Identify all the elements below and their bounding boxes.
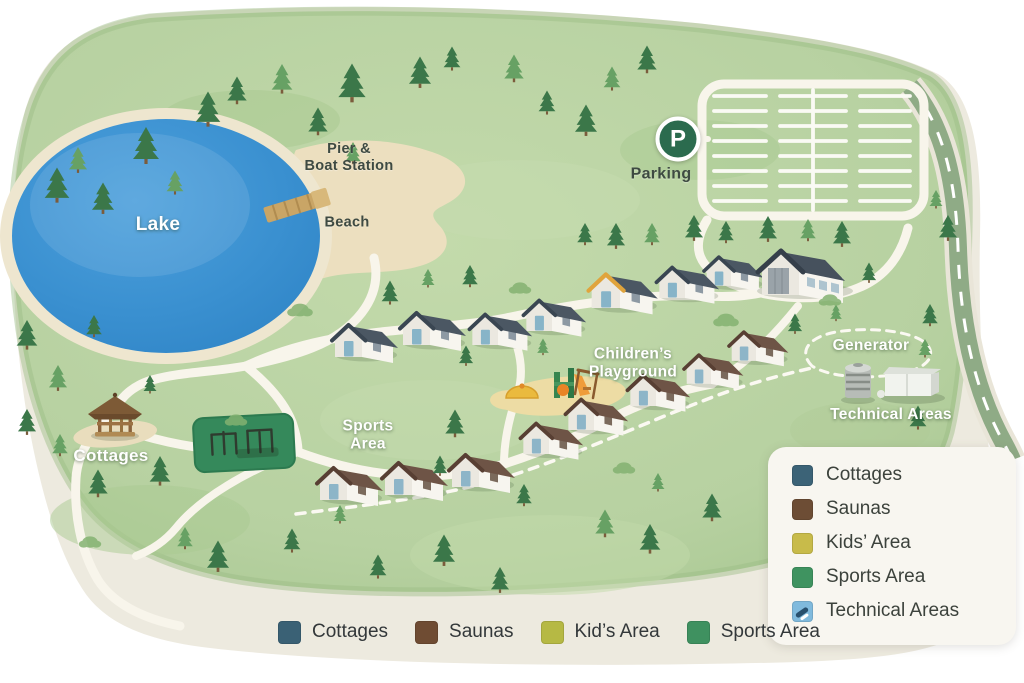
pier-label-line1: Pier &	[305, 141, 394, 158]
legend-label: Cottages	[312, 621, 388, 643]
sports-area-label-line1: Sports	[343, 418, 394, 436]
legend-label: Saunas	[826, 498, 890, 520]
color-swatch	[792, 567, 813, 588]
parking-label: Parking	[631, 166, 692, 185]
sports-area-label: Sports Area	[343, 418, 394, 455]
legend-item: Cottages	[278, 621, 388, 644]
color-swatch	[792, 533, 813, 554]
playground-label-line1: Children’s	[589, 346, 677, 364]
resort-map: Lake Pier & Boat Station Beach P Parking…	[0, 0, 1024, 683]
legend-item: Cottages	[792, 464, 1016, 486]
legend-label: Sports Area	[721, 621, 820, 643]
legend-item: Technical Areas	[792, 600, 1016, 622]
legend-label: Sports Area	[826, 566, 925, 588]
cottages-area-label: Cottages	[73, 446, 148, 466]
legend-item: Saunas	[415, 621, 513, 644]
generator-label: Generator	[833, 337, 910, 355]
technical-building-icon	[877, 367, 945, 404]
legend-item: Kids’ Area	[792, 532, 1016, 554]
legend-label: Kid’s Area	[575, 621, 660, 643]
technical-areas-label: Technical Areas	[830, 406, 952, 424]
lake-label: Lake	[136, 214, 181, 236]
pier-label: Pier & Boat Station	[305, 141, 394, 175]
legend-label: Cottages	[826, 464, 902, 486]
legend-panel-items: CottagesSaunasKids’ AreaSports AreaTechn…	[792, 464, 1016, 622]
bottom-legend: CottagesSaunasKid’s AreaSports Area	[278, 615, 820, 649]
sports-area-label-line2: Area	[343, 436, 394, 454]
color-swatch	[278, 621, 301, 644]
color-swatch	[415, 621, 438, 644]
color-swatch	[792, 465, 813, 486]
beach-label: Beach	[324, 214, 369, 231]
legend-label: Technical Areas	[826, 600, 959, 622]
playground-label: Children’s Playground	[589, 346, 677, 383]
color-swatch	[541, 621, 564, 644]
legend-item: Kid’s Area	[541, 621, 660, 644]
color-swatch	[792, 499, 813, 520]
pier-label-line2: Boat Station	[305, 158, 394, 175]
color-swatch	[687, 621, 710, 644]
legend-label: Saunas	[449, 621, 513, 643]
legend-item: Sports Area	[687, 621, 820, 644]
parking-icon: P	[656, 117, 701, 162]
playground-label-line2: Playground	[589, 364, 677, 382]
legend-label: Kids’ Area	[826, 532, 911, 554]
legend-item: Saunas	[792, 498, 1016, 520]
legend-item: Sports Area	[792, 566, 1016, 588]
generator-tank-icon	[841, 363, 875, 404]
